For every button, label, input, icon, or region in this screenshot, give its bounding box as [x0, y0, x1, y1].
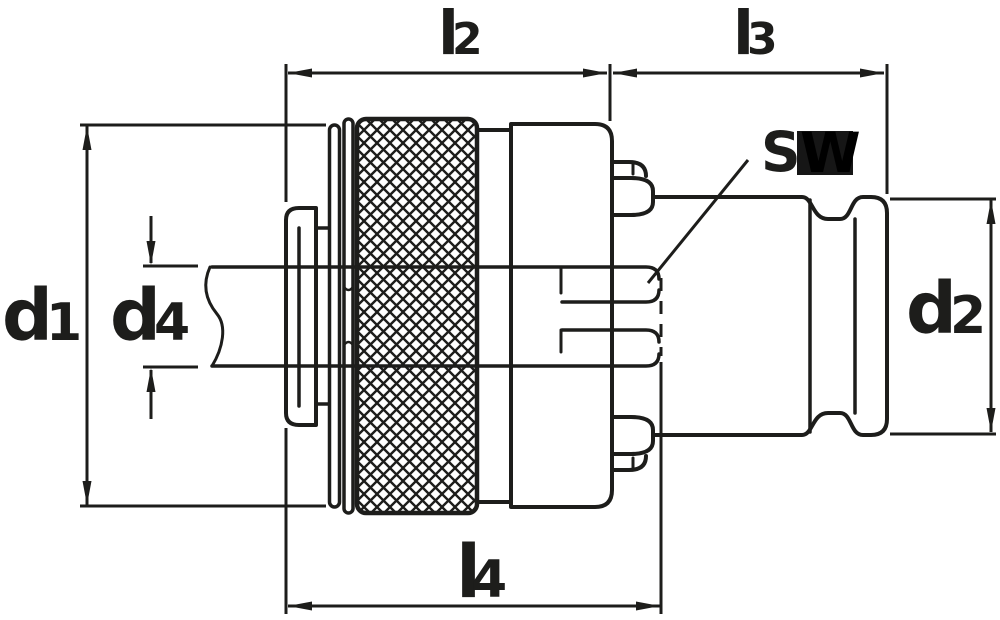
label-sw-w: W [800, 121, 861, 185]
arrow-l2-right [583, 69, 607, 78]
arrow-l4-right [636, 602, 660, 611]
arrow-d4-bottom [147, 368, 156, 392]
arrow-l3-left [613, 69, 637, 78]
label-d4-sub: 4 [154, 293, 190, 353]
technical-drawing-canvas: d 1 d 4 d 2 l 2 l 3 l 4 S W [0, 0, 1000, 620]
bottom-pin-head [612, 417, 653, 454]
bottom-pin-collar [612, 456, 646, 470]
arrow-l2-left [288, 69, 312, 78]
shank-break-line [206, 267, 223, 366]
arrow-d4-top [147, 241, 156, 265]
label-l4-sub: 4 [471, 550, 507, 610]
arrow-d2-bottom [987, 408, 996, 432]
arrow-d1-bottom [83, 481, 92, 505]
arrow-d2-top [987, 200, 996, 224]
arrow-l4-left [288, 602, 312, 611]
top-pin-collar [612, 162, 646, 176]
tap-adapter-drawing: d 1 d 4 d 2 l 2 l 3 l 4 S W [0, 0, 1000, 620]
washer-ring-inner [344, 119, 353, 513]
sw-leader-line [648, 160, 748, 283]
housing-body [511, 124, 612, 507]
label-sw-s: S [761, 120, 801, 184]
knurled-sleeve [357, 119, 477, 513]
top-pin-head [612, 178, 653, 215]
label-l3-sub: 3 [747, 14, 778, 65]
washer-ring-outer [330, 125, 340, 507]
sw-w-label-group: W [800, 121, 861, 185]
label-d2-sub: 2 [950, 286, 986, 346]
label-d1-sub: 1 [46, 293, 82, 353]
intermediate-collar [479, 130, 511, 502]
dimension-labels: d 1 d 4 d 2 l 2 l 3 l 4 S [2, 0, 986, 615]
arrow-l3-right [860, 69, 884, 78]
label-l2-sub: 2 [452, 14, 483, 65]
arrow-d1-top [83, 126, 92, 150]
front-collar [286, 208, 316, 425]
